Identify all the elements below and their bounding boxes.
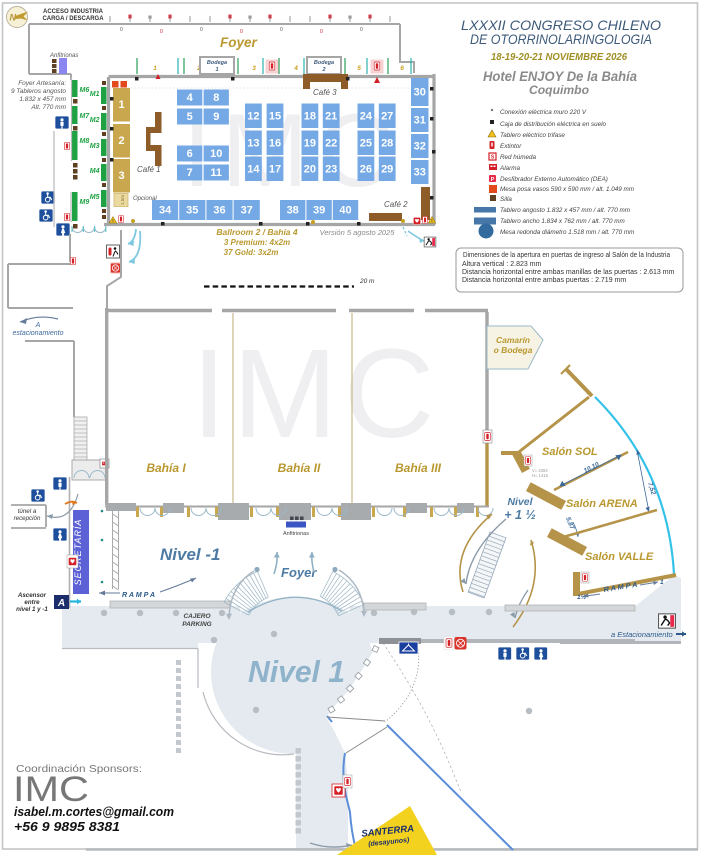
- svg-text:Bahía I: Bahía I: [146, 461, 186, 475]
- svg-text:a Estacionamiento: a Estacionamiento: [611, 630, 673, 639]
- svg-text:25: 25: [360, 137, 372, 149]
- svg-text:Foyer: Foyer: [281, 565, 317, 580]
- svg-text:H= 1415: H= 1415: [532, 473, 549, 478]
- svg-text:3: 3: [252, 65, 256, 72]
- svg-text:3 Premium: 4x2m: 3 Premium: 4x2m: [224, 238, 290, 247]
- svg-text:17: 17: [269, 163, 281, 175]
- svg-text:37 Gold: 3x2m: 37 Gold: 3x2m: [224, 248, 279, 257]
- svg-text:13: 13: [247, 137, 259, 149]
- svg-text:3: 3: [118, 170, 124, 182]
- svg-text:o Bodega: o Bodega: [494, 345, 533, 355]
- svg-text:Salón ARENA: Salón ARENA: [566, 498, 638, 510]
- svg-text:Coquimbo: Coquimbo: [529, 83, 589, 97]
- svg-text:Bahía II: Bahía II: [278, 461, 321, 475]
- svg-text:11: 11: [210, 167, 222, 179]
- svg-text:LXXXII CONGRESO CHILENO: LXXXII CONGRESO CHILENO: [461, 18, 661, 33]
- svg-text:0: 0: [320, 29, 323, 35]
- svg-text:9: 9: [213, 111, 219, 123]
- svg-text:31: 31: [414, 115, 426, 127]
- svg-text:Distancia horizontal entre amb: Distancia horizontal entre ambas manilla…: [462, 269, 675, 276]
- svg-text:Camarín: Camarín: [496, 335, 530, 345]
- svg-text:1: 1: [660, 579, 664, 586]
- svg-text:PARKING: PARKING: [182, 621, 212, 628]
- svg-text:Desfibrador Externo Automático: Desfibrador Externo Automático (DEA): [500, 176, 608, 183]
- svg-text:20 m: 20 m: [359, 278, 375, 285]
- svg-text:34: 34: [159, 205, 172, 217]
- svg-text:nivel 1 y -1: nivel 1 y -1: [16, 606, 48, 613]
- svg-text:Tablero eléctrico trifase: Tablero eléctrico trifase: [500, 132, 565, 139]
- svg-text:DE OTORRINOLARINGOLOGIA: DE OTORRINOLARINGOLOGIA: [470, 32, 652, 47]
- svg-text:1½: 1½: [577, 593, 587, 601]
- svg-text:Café 3: Café 3: [313, 88, 337, 97]
- svg-text:Tablero angosto 1.832 x 457 mm: Tablero angosto 1.832 x 457 mm / alt. 77…: [500, 207, 630, 214]
- svg-text:Salón SOL: Salón SOL: [542, 446, 598, 458]
- svg-text:38: 38: [287, 205, 299, 217]
- svg-text:R A M P A: R A M P A: [122, 592, 155, 599]
- svg-text:A: A: [35, 322, 41, 329]
- svg-text:Altura vertical : 2.823 mm: Altura vertical : 2.823 mm: [462, 261, 542, 268]
- svg-text:14: 14: [247, 163, 260, 175]
- svg-text:5: 5: [357, 65, 361, 72]
- svg-text:0: 0: [200, 27, 203, 33]
- svg-text:2: 2: [118, 135, 124, 147]
- svg-text:1.832 x 457 mm: 1.832 x 457 mm: [19, 96, 66, 103]
- svg-text:1,5m: 1,5m: [120, 195, 125, 205]
- svg-text:29: 29: [381, 163, 393, 175]
- svg-text:Nivel 1: Nivel 1: [248, 654, 345, 689]
- svg-text:19: 19: [304, 137, 316, 149]
- svg-text:26: 26: [360, 163, 372, 175]
- svg-text:M6: M6: [80, 87, 90, 94]
- svg-text:4: 4: [293, 65, 298, 72]
- svg-text:15: 15: [269, 110, 281, 122]
- svg-text:Silla: Silla: [500, 196, 512, 203]
- svg-text:1: 1: [153, 65, 157, 72]
- svg-text:0: 0: [160, 29, 163, 35]
- svg-text:16: 16: [269, 137, 281, 149]
- svg-text:27: 27: [381, 110, 393, 122]
- svg-text:4: 4: [187, 92, 194, 104]
- svg-text:23: 23: [325, 163, 337, 175]
- svg-text:M9: M9: [80, 199, 90, 206]
- svg-text:Conexión eléctrica muro 220 V: Conexión eléctrica muro 220 V: [500, 109, 587, 116]
- svg-text:M3: M3: [90, 143, 100, 150]
- svg-text:20: 20: [304, 163, 316, 175]
- svg-text:37: 37: [241, 205, 253, 217]
- svg-text:entre: entre: [24, 599, 40, 606]
- svg-text:1: 1: [215, 67, 218, 73]
- svg-text:Mesa redonda diámetro 1.518 mm: Mesa redonda diámetro 1.518 mm / alt. 77…: [500, 229, 634, 236]
- svg-text:18-19-20-21 NOVIEMBRE 2026: 18-19-20-21 NOVIEMBRE 2026: [491, 52, 627, 63]
- svg-text:Nivel -1: Nivel -1: [160, 545, 220, 564]
- svg-text:SECRETARÍA: SECRETARÍA: [73, 519, 83, 586]
- svg-text:Café 1: Café 1: [137, 165, 161, 174]
- svg-text:isabel.m.cortes@gmail.com: isabel.m.cortes@gmail.com: [14, 804, 174, 819]
- svg-text:+ 1 ½: + 1 ½: [504, 508, 536, 522]
- svg-text:10: 10: [210, 148, 222, 160]
- svg-text:22: 22: [325, 137, 337, 149]
- svg-text:+56 9 9895 8381: +56 9 9895 8381: [14, 819, 120, 834]
- svg-text:CAJERO: CAJERO: [183, 613, 210, 620]
- svg-text:Bodega: Bodega: [314, 60, 334, 66]
- svg-text:Dimensiones de la apertura en: Dimensiones de la apertura en puertas de…: [463, 252, 670, 259]
- svg-text:Ascensor: Ascensor: [17, 592, 47, 599]
- svg-text:0: 0: [360, 27, 363, 33]
- svg-text:21: 21: [325, 110, 337, 122]
- svg-text:M2: M2: [90, 117, 100, 124]
- svg-text:recepción: recepción: [14, 515, 41, 522]
- svg-text:5: 5: [187, 111, 193, 123]
- svg-text:túnel a: túnel a: [18, 508, 37, 515]
- svg-text:Bodega: Bodega: [207, 60, 227, 66]
- svg-text:36: 36: [213, 205, 225, 217]
- svg-text:Versión 5 agosto 2025: Versión 5 agosto 2025: [320, 228, 396, 237]
- svg-text:40: 40: [339, 205, 351, 217]
- svg-text:12: 12: [247, 110, 259, 122]
- svg-text:M4: M4: [90, 168, 100, 175]
- svg-text:M5: M5: [90, 194, 100, 201]
- svg-text:Ballroom 2 / Bahía 4: Ballroom 2 / Bahía 4: [216, 227, 298, 237]
- svg-text:P: P: [491, 177, 495, 183]
- svg-text:CARGA / DESCARGA: CARGA / DESCARGA: [42, 16, 104, 22]
- svg-text:9 Tableros angosto: 9 Tableros angosto: [11, 88, 66, 95]
- svg-text:8: 8: [213, 92, 219, 104]
- svg-text:33: 33: [414, 167, 426, 179]
- svg-text:0: 0: [120, 27, 123, 33]
- svg-text:2: 2: [321, 67, 325, 73]
- svg-text:24: 24: [360, 110, 373, 122]
- svg-text:Hotel ENJOY De la Bahía: Hotel ENJOY De la Bahía: [483, 68, 637, 84]
- svg-text:Foyer: Foyer: [220, 35, 258, 50]
- svg-text:30: 30: [414, 87, 426, 99]
- svg-text:Tablero ancho 1.834 x 762 mm /: Tablero ancho 1.834 x 762 mm / alt. 770 …: [500, 218, 625, 225]
- svg-text:Caja de distribución eléctrica: Caja de distribución eléctrica en suelo: [500, 121, 607, 128]
- svg-text:18: 18: [304, 110, 316, 122]
- svg-text:Anfitrionas: Anfitrionas: [283, 531, 309, 537]
- svg-text:35: 35: [186, 205, 198, 217]
- svg-text:7: 7: [187, 167, 193, 179]
- svg-text:M7: M7: [80, 113, 91, 120]
- svg-text:M1: M1: [90, 91, 100, 98]
- svg-text:0: 0: [280, 27, 283, 33]
- svg-text:IMC: IMC: [192, 323, 441, 464]
- svg-text:Nivel: Nivel: [507, 496, 533, 508]
- svg-text:6: 6: [187, 148, 193, 160]
- svg-text:A: A: [57, 598, 65, 609]
- svg-text:6: 6: [400, 65, 404, 72]
- svg-text:Red húmeda: Red húmeda: [500, 154, 537, 161]
- svg-text:28: 28: [381, 137, 393, 149]
- svg-text:Mesa posa vasos 590 x 590 mm /: Mesa posa vasos 590 x 590 mm / alt. 1.04…: [500, 186, 634, 193]
- svg-text:Distancia horizontal entre amb: Distancia horizontal entre ambas puertas…: [462, 277, 626, 284]
- svg-text:estacionamiento: estacionamiento: [13, 330, 64, 337]
- svg-text:ACCESO INDUSTRIA: ACCESO INDUSTRIA: [43, 9, 104, 15]
- svg-text:Café 2: Café 2: [384, 200, 408, 209]
- svg-text:Alarma: Alarma: [499, 165, 520, 172]
- svg-text:Extintor: Extintor: [500, 143, 522, 150]
- svg-text:Bahía III: Bahía III: [395, 461, 442, 475]
- svg-text:1: 1: [118, 99, 124, 111]
- svg-text:Alt. 770 mm: Alt. 770 mm: [30, 104, 66, 111]
- svg-text:M8: M8: [80, 138, 90, 145]
- svg-text:Salón VALLE: Salón VALLE: [585, 551, 654, 563]
- svg-text:39: 39: [313, 205, 325, 217]
- svg-text:32: 32: [414, 141, 426, 153]
- svg-text:Foyer Artesanía:: Foyer Artesanía:: [18, 80, 66, 87]
